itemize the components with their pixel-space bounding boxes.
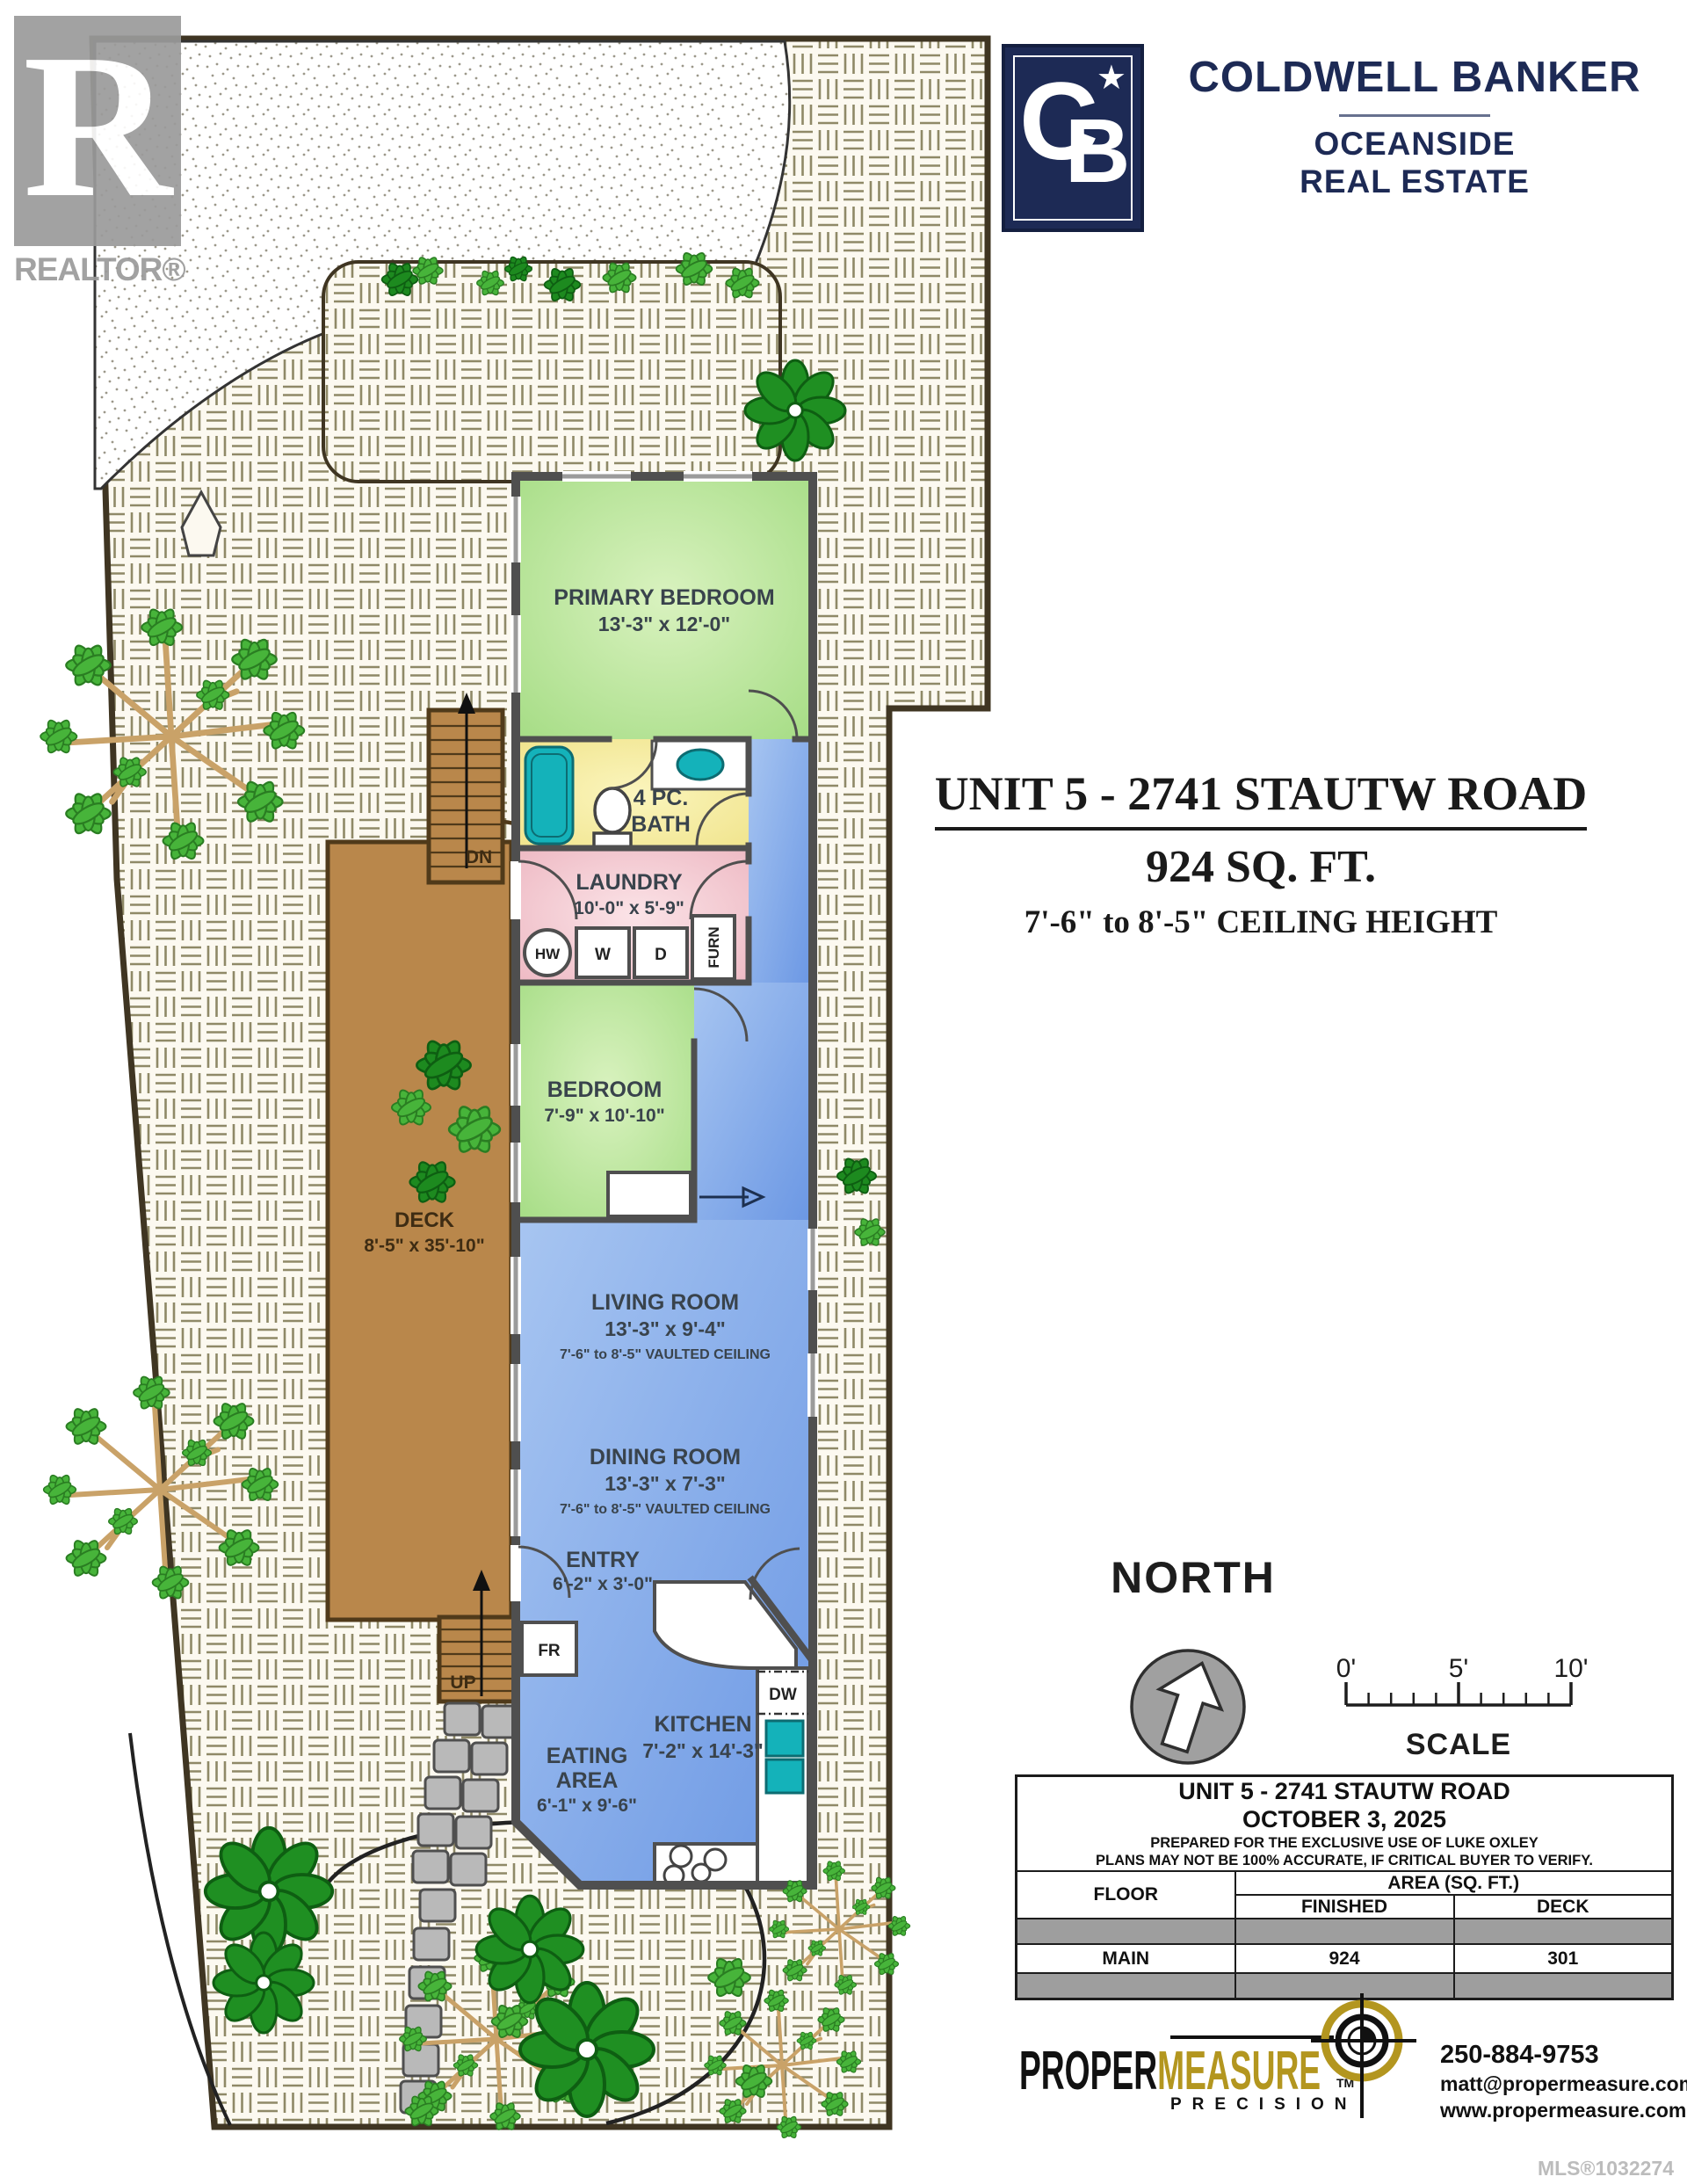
stove <box>655 1844 757 1885</box>
col-header-floor: FLOOR <box>1017 1871 1235 1919</box>
washer-label: W <box>595 946 611 964</box>
cb-star-icon: ★ <box>1097 58 1126 98</box>
bathtub <box>525 747 573 844</box>
table-date: OCTOBER 3, 2025 <box>1017 1805 1671 1833</box>
area-table-header: UNIT 5 - 2741 STAUTW ROAD OCTOBER 3, 202… <box>1017 1776 1673 1872</box>
fridge-label: FR <box>538 1642 561 1660</box>
table-title: UNIT 5 - 2741 STAUTW ROAD <box>1017 1777 1671 1805</box>
entry-label: ENTRY <box>566 1548 640 1572</box>
dining-room-label: DINING ROOM <box>590 1445 741 1469</box>
stairs-down-label: DN <box>466 847 492 867</box>
pm-website: www.propermeasure.com <box>1440 2099 1687 2122</box>
plan-title-block: UNIT 5 - 2741 STAUTW ROAD 924 SQ. FT. 7'… <box>905 766 1617 941</box>
scale-tick-10: 10' <box>1553 1654 1588 1683</box>
pm-phone: 250-884-9753 <box>1440 2041 1687 2070</box>
cell-floor: MAIN <box>1017 1944 1235 1973</box>
pm-word-proper: PROPER <box>1019 2041 1157 2101</box>
bath-label: 4 PC. <box>634 786 689 810</box>
col-header-deck: DECK <box>1454 1895 1673 1919</box>
primary-bedroom-dims: 13'-3" x 12'-0" <box>598 613 730 635</box>
cb-monogram-b: B <box>1065 105 1130 196</box>
bedroom-label: BEDROOM <box>547 1077 662 1102</box>
pm-contact-block: 250-884-9753 matt@propermeasure.com www.… <box>1440 2041 1687 2122</box>
floorplan-page: PRIMARY BEDROOM 13'-3" x 12'-0" 4 PC. BA… <box>0 0 1687 2184</box>
dining-room-note: 7'-6" to 8'-5" VAULTED CEILING <box>560 1502 771 1517</box>
kitchen-sink <box>766 1721 803 1793</box>
plan-title: UNIT 5 - 2741 STAUTW ROAD <box>935 766 1588 831</box>
cb-office-line2: REAL ESTATE <box>1182 163 1647 201</box>
deck-label: DECK <box>395 1208 455 1232</box>
dryer-label: D <box>655 946 667 964</box>
pm-word-measure: MEASURE <box>1157 2041 1321 2101</box>
pm-divider <box>1170 2035 1334 2039</box>
realtor-r-icon: R <box>23 23 172 229</box>
mls-number: MLS®1032274 <box>1538 2157 1674 2180</box>
area-table: UNIT 5 - 2741 STAUTW ROAD OCTOBER 3, 202… <box>1015 1774 1674 2000</box>
scale-bar: 0' 5' 10' SCALE <box>1336 1654 1589 1761</box>
realtor-logo-box: R <box>14 16 181 246</box>
bush <box>476 1896 583 2003</box>
laundry-label: LAUNDRY <box>576 870 683 895</box>
col-header-finished: FINISHED <box>1235 1895 1454 1919</box>
north-label: NORTH <box>1111 1553 1276 1602</box>
entry-dims: 6'-2" x 3'-0" <box>553 1574 653 1594</box>
bush <box>214 1933 314 2033</box>
bedroom-dims: 7'-9" x 10'-10" <box>544 1106 664 1126</box>
cb-office-line1: OCEANSIDE <box>1182 126 1647 163</box>
bush <box>745 360 845 461</box>
deck-dims: 8'-5" x 35'-10" <box>364 1236 484 1256</box>
toilet <box>594 788 631 847</box>
cell-finished: 924 <box>1235 1944 1454 1973</box>
bath-label2: BATH <box>631 812 691 837</box>
living-room-dims: 13'-3" x 9'-4" <box>605 1317 726 1340</box>
stairs-up-label: UP <box>450 1672 475 1693</box>
eating-area-label: EATING <box>547 1744 628 1768</box>
eating-area-label2: AREA <box>556 1768 619 1793</box>
eating-area-dims: 6'-1" x 9'-6" <box>537 1796 637 1816</box>
hallway-mid <box>694 983 808 1220</box>
dishwasher-label: DW <box>769 1686 797 1704</box>
room-primary-bedroom <box>520 481 808 739</box>
realtor-wordmark: REALTOR® <box>14 251 190 288</box>
cb-logo-icon: C B ★ <box>1002 44 1144 232</box>
plan-ceiling-height: 7'-6" to 8'-5" CEILING HEIGHT <box>905 903 1617 941</box>
table-disclaimer: PLANS MAY NOT BE 100% ACCURATE, IF CRITI… <box>1017 1852 1671 1870</box>
pm-email: matt@propermeasure.com <box>1440 2072 1687 2096</box>
scale-label: SCALE <box>1406 1728 1511 1761</box>
scale-tick-0: 0' <box>1336 1654 1356 1683</box>
bath-sink <box>652 741 749 789</box>
table-prepared: PREPARED FOR THE EXCLUSIVE USE OF LUKE O… <box>1017 1834 1671 1853</box>
table-spacer-row <box>1017 1919 1673 1944</box>
propermeasure-wordmark: PROPERMEASURE <box>1019 2044 1321 2099</box>
bush <box>520 1983 654 2116</box>
dining-room-dims: 13'-3" x 7'-3" <box>605 1472 726 1495</box>
closet <box>608 1172 691 1216</box>
living-room-label: LIVING ROOM <box>591 1290 739 1315</box>
table-row: MAIN 924 301 <box>1017 1944 1673 1973</box>
cell-deck: 301 <box>1454 1944 1673 1973</box>
hallway-upper <box>749 739 808 987</box>
house <box>516 476 813 1885</box>
cb-divider <box>1339 114 1490 117</box>
realtor-logo: R REALTOR® <box>14 16 190 288</box>
furnace-label: FURN <box>706 926 722 968</box>
laundry-dims: 10'-0" x 5'-9" <box>574 898 684 918</box>
cb-brand-name: COLDWELL BANKER <box>1182 53 1647 102</box>
propermeasure-target-icon <box>1311 1988 1425 2129</box>
primary-bedroom-label: PRIMARY BEDROOM <box>554 585 774 610</box>
living-room-note: 7'-6" to 8'-5" VAULTED CEILING <box>560 1347 771 1362</box>
north-compass: NORTH <box>1111 1553 1276 1763</box>
kitchen-dims: 7'-2" x 14'-3" <box>642 1739 764 1762</box>
col-header-area: AREA (SQ. FT.) <box>1235 1871 1673 1895</box>
hot-water-label: HW <box>535 946 561 962</box>
scale-tick-5: 5' <box>1449 1654 1468 1683</box>
kitchen-label: KITCHEN <box>654 1712 751 1737</box>
plan-sqft: 924 SQ. FT. <box>905 841 1617 893</box>
